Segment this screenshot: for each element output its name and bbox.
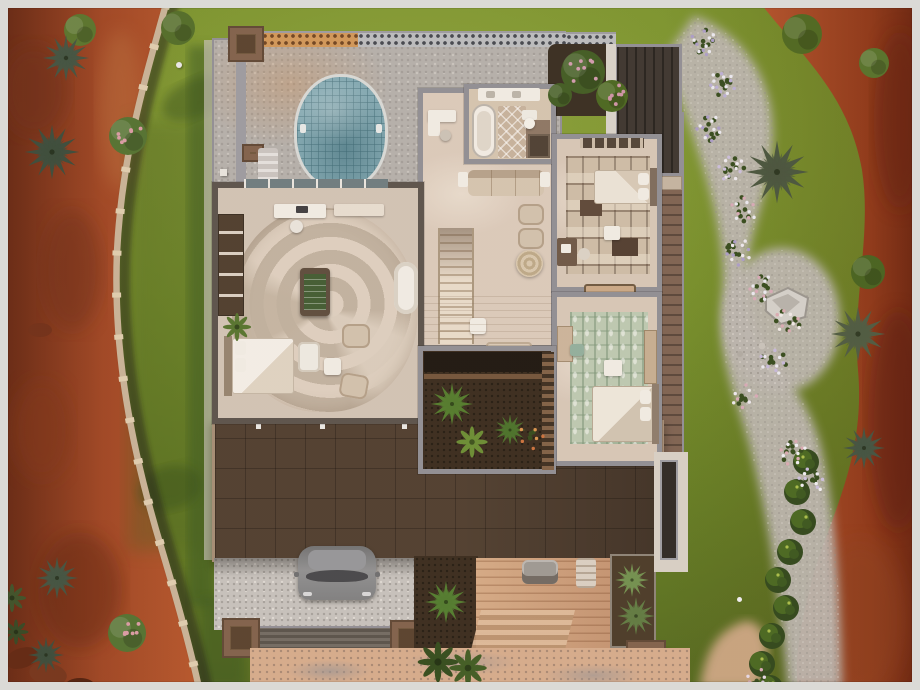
hedge-bush[interactable] <box>784 479 810 505</box>
agave-plant[interactable] <box>431 383 473 425</box>
hedge-bush[interactable] <box>790 509 816 535</box>
flower-cluster <box>691 28 715 56</box>
fern-plant[interactable] <box>4 620 29 645</box>
flower-cluster <box>730 195 755 223</box>
agave-plant[interactable] <box>36 557 78 599</box>
screenshot <box>0 0 920 690</box>
hedge-bush[interactable] <box>777 539 803 565</box>
fern-plant[interactable] <box>223 313 251 341</box>
agave-plant[interactable] <box>831 307 886 362</box>
flower-cluster <box>760 349 788 375</box>
agave-plant[interactable] <box>25 125 80 180</box>
bush[interactable] <box>782 14 822 54</box>
agave-plant[interactable] <box>843 427 885 469</box>
flower-cluster <box>520 428 545 450</box>
agave-plant[interactable] <box>425 581 467 623</box>
flower-cluster <box>725 239 750 266</box>
hedge-bush[interactable] <box>749 651 775 677</box>
bush[interactable] <box>859 48 889 78</box>
fern-plant[interactable] <box>456 426 487 457</box>
fern-plant[interactable] <box>449 649 487 687</box>
vegetation-layer <box>0 0 920 690</box>
fern-plant[interactable] <box>418 642 459 683</box>
bush[interactable] <box>851 255 885 289</box>
flowering-bush[interactable] <box>109 117 147 155</box>
flower-cluster <box>748 274 773 302</box>
agave-plant[interactable] <box>615 563 649 597</box>
flower-cluster <box>717 156 746 181</box>
agave-plant[interactable] <box>28 637 64 673</box>
agave-plant[interactable] <box>746 141 809 204</box>
flowering-bush[interactable] <box>596 80 628 112</box>
fern-plant[interactable] <box>0 584 26 612</box>
lot-scene <box>0 0 920 690</box>
hedge-bush[interactable] <box>759 623 785 649</box>
flowering-bush[interactable] <box>108 614 146 652</box>
flower-cluster <box>732 383 758 409</box>
hedge-bush[interactable] <box>773 595 799 621</box>
flower-cluster <box>774 309 801 332</box>
bush[interactable] <box>161 11 195 45</box>
flower-cluster <box>709 72 736 98</box>
hedge-bush[interactable] <box>757 675 783 690</box>
hedge-bush[interactable] <box>765 567 791 593</box>
agave-plant[interactable] <box>617 597 655 635</box>
flower-cluster <box>695 115 721 143</box>
bush[interactable] <box>548 83 572 107</box>
bush[interactable] <box>64 14 96 46</box>
